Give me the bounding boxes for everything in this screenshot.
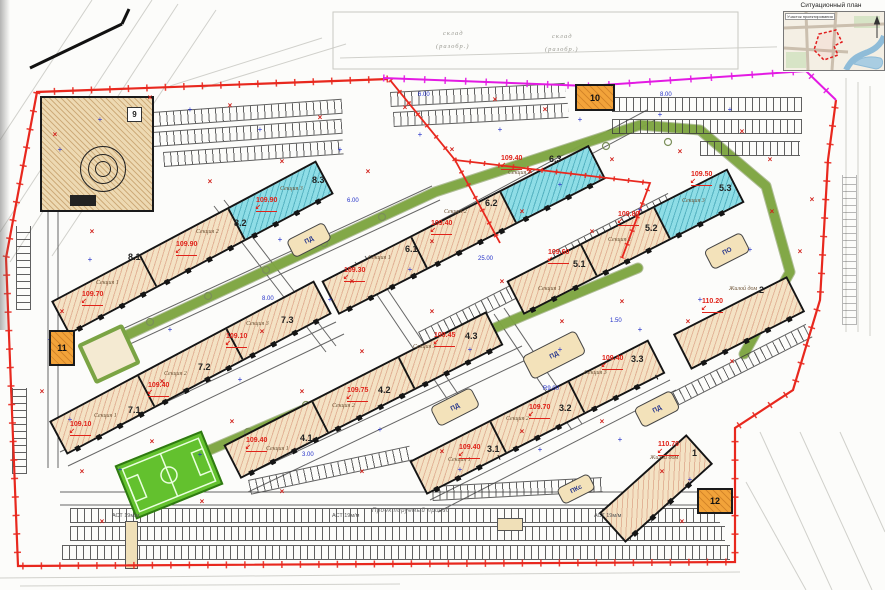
tree-removal-mark: × <box>450 146 455 154</box>
elevation-mark: 109.10 <box>70 421 91 436</box>
elevation-mark: 109.60 <box>548 249 569 264</box>
tree-removal-mark: × <box>53 131 58 139</box>
tree-removal-mark: × <box>150 438 155 446</box>
existing-structure-label: (разобр.) <box>545 46 579 53</box>
elevation-mark: 110.20 <box>702 298 723 313</box>
elevation-mark: 109.90 <box>176 241 197 256</box>
survey-mark: + <box>498 126 503 134</box>
building-number: 3.2 <box>559 404 572 413</box>
service-object-11: 11 <box>49 330 75 366</box>
dimension-label: 8.00 <box>660 92 672 98</box>
building-section <box>413 192 517 267</box>
building-number: 2 <box>759 286 764 295</box>
section-label: Секция 1 <box>368 255 391 261</box>
dimension-label: 1.50 <box>610 318 622 324</box>
parking-row-vertical <box>842 175 857 325</box>
tree-removal-mark: × <box>620 298 625 306</box>
tree-removal-mark: × <box>100 518 105 526</box>
parking-row <box>62 545 730 560</box>
parking-count-label: АСТ 19м/м <box>594 514 621 520</box>
elevation-mark: 109.40 <box>501 155 522 170</box>
tree-removal-mark: × <box>500 278 505 286</box>
tree-removal-mark: × <box>360 348 365 356</box>
dimension-label: 8.00 <box>262 296 274 302</box>
parking-count-label: АСТ 19м/м <box>112 514 139 520</box>
tree-removal-mark: × <box>200 498 205 506</box>
building-number: 4.2 <box>378 386 391 395</box>
site-pad-ПД: ПД <box>430 387 481 427</box>
parking-count-label: АСТ 19м/м <box>332 514 359 520</box>
tree-removal-mark: × <box>90 228 95 236</box>
tree-removal-mark: × <box>600 418 605 426</box>
tree-removal-mark: × <box>160 378 165 386</box>
existing-structure-label: (разобр.) <box>436 43 470 50</box>
survey-mark: + <box>118 466 123 474</box>
elevation-mark: 109.80 <box>618 211 639 226</box>
tree-removal-mark: × <box>686 318 691 326</box>
tree-removal-mark: × <box>360 468 365 476</box>
tree-removal-mark: × <box>810 196 815 204</box>
elevation-mark: 109.70 <box>529 404 550 419</box>
tree-removal-mark: × <box>440 448 445 456</box>
survey-mark: + <box>88 256 93 264</box>
survey-mark: + <box>188 106 193 114</box>
survey-mark: + <box>688 476 693 484</box>
survey-mark: + <box>378 426 383 434</box>
tree-removal-mark: × <box>60 308 65 316</box>
survey-mark: + <box>468 346 473 354</box>
section-label: Секция 1 <box>538 286 561 292</box>
survey-mark: + <box>698 296 703 304</box>
utility-pad <box>497 518 523 531</box>
section-label: Секция 1 <box>94 413 117 419</box>
dimension-label: R9.00 <box>543 386 559 392</box>
survey-mark: + <box>618 436 623 444</box>
parking-row <box>612 119 802 134</box>
building-number: 6.3 <box>549 155 562 164</box>
tree-removal-mark: × <box>208 178 213 186</box>
tree-removal-mark: × <box>280 488 285 496</box>
utility-pad <box>125 521 138 569</box>
existing-structure-label: склад <box>552 33 573 40</box>
tree-removal-mark: × <box>230 418 235 426</box>
parking-row-vertical <box>16 226 31 310</box>
building-number: 5.3 <box>719 184 732 193</box>
tree-removal-mark: × <box>403 104 408 112</box>
section-label: Секция 3 <box>584 370 607 376</box>
north-arrow <box>875 17 880 38</box>
survey-mark: + <box>408 266 413 274</box>
road-name-label: Проектируемый проезд <box>372 508 450 514</box>
building-number: 5.2 <box>645 224 658 233</box>
elevation-mark: 109.30 <box>344 267 365 282</box>
dimension-label: 6.00 <box>347 198 359 204</box>
tree-removal-mark: × <box>528 168 533 176</box>
tree-removal-mark: × <box>430 238 435 246</box>
building-number: 3.3 <box>631 355 644 364</box>
site-pad-ПД: ПД <box>521 330 586 380</box>
situational-plan-title: Ситуационный план <box>777 0 885 9</box>
tree-removal-mark: × <box>590 228 595 236</box>
survey-mark: + <box>58 146 63 154</box>
section-label: Секция 3 <box>280 186 303 192</box>
tree-removal-mark: × <box>660 468 665 476</box>
section-label: Жилой дом <box>727 286 759 293</box>
tree-removal-mark: × <box>280 158 285 166</box>
survey-mark: + <box>418 131 423 139</box>
section-label: Секция 2 <box>196 229 219 235</box>
section-label: Секция 3 <box>682 198 705 204</box>
section-label: Секция 1 <box>96 280 119 286</box>
parking-row <box>612 97 802 112</box>
building-number: 4.1 <box>300 434 313 443</box>
section-label: Секция 2 <box>506 416 529 422</box>
survey-mark: + <box>658 111 663 119</box>
building-number: 3.1 <box>487 445 500 454</box>
tree-removal-mark: × <box>300 388 305 396</box>
tree-removal-mark: × <box>610 156 615 164</box>
building-number: 7.1 <box>128 406 141 415</box>
section-label: Секция 2 <box>608 237 631 243</box>
survey-mark: + <box>168 326 173 334</box>
tree-removal-mark: × <box>798 248 803 256</box>
tree-removal-mark: × <box>366 168 371 176</box>
survey-mark: + <box>458 466 463 474</box>
survey-mark: + <box>748 246 753 254</box>
survey-mark: + <box>328 296 333 304</box>
tree-removal-mark: × <box>318 114 323 122</box>
survey-mark: + <box>338 146 343 154</box>
situational-plan-inset: Ситуационный план Участок проектирования <box>777 0 885 72</box>
building-number: 4.3 <box>465 332 478 341</box>
design-area-label: Участок проектирования <box>785 13 835 20</box>
tree-removal-mark: × <box>560 318 565 326</box>
survey-mark: + <box>728 106 733 114</box>
block-annex <box>70 195 96 206</box>
existing-structure-label: склад <box>443 30 464 37</box>
site-pad-ПД: ПД <box>286 222 333 259</box>
tree-removal-mark: × <box>768 156 773 164</box>
dimension-label: 6.00 <box>418 92 430 98</box>
elevation-mark: 109.50 <box>691 171 712 186</box>
tree-removal-mark: × <box>228 102 233 110</box>
elevation-mark: 109.10 <box>226 333 247 348</box>
elevation-mark: 109.45 <box>434 332 455 347</box>
ramp-circle-inner <box>95 161 111 177</box>
survey-mark: + <box>558 181 563 189</box>
site-pad-ПО: ПО <box>703 232 750 271</box>
elevation-mark: 110.70 <box>658 441 679 456</box>
building-number: 8.3 <box>312 176 325 185</box>
elevation-mark: 109.70 <box>82 291 103 306</box>
section-label: Секция 3 <box>246 321 269 327</box>
section-label: Секция 1 <box>266 446 289 452</box>
site-plan-canvas: 9 ПДПДПДПДПОПКс 8.1Секция 1109.708.2Секц… <box>0 0 885 590</box>
elevation-mark: 109.90 <box>256 197 277 212</box>
elevation-mark: 109.40 <box>459 444 480 459</box>
tree-removal-mark: × <box>260 328 265 336</box>
survey-mark: + <box>258 126 263 134</box>
building-number: 6.1 <box>405 245 418 254</box>
site-pad-ПД: ПД <box>633 390 680 429</box>
building-number: 8.1 <box>128 253 141 262</box>
building-number-9: 9 <box>127 107 142 122</box>
tree-removal-mark: × <box>493 96 498 104</box>
elevation-mark: 109.40 <box>246 437 267 452</box>
elevation-mark: 109.40 <box>602 355 623 370</box>
tree-removal-mark: × <box>148 94 153 102</box>
sports-field <box>115 431 224 520</box>
section-label: Жилой дом <box>648 455 680 462</box>
elevation-mark: 109.75 <box>347 387 368 402</box>
dimension-label: 3.00 <box>302 452 314 458</box>
parking-row-vertical <box>12 388 27 474</box>
survey-mark: + <box>98 116 103 124</box>
section-label: Секция 2 <box>332 403 355 409</box>
tree-removal-mark: × <box>680 518 685 526</box>
tree-removal-mark: × <box>770 208 775 216</box>
design-area-boundary <box>814 30 842 60</box>
building-number: 7.3 <box>281 316 294 325</box>
survey-mark: + <box>638 206 643 214</box>
building-number: 6.2 <box>485 199 498 208</box>
dimension-label: 25.00 <box>478 256 493 262</box>
situational-plan-map: Участок проектирования <box>783 11 885 71</box>
tree-removal-mark: × <box>678 148 683 156</box>
survey-mark: + <box>578 116 583 124</box>
survey-mark: + <box>538 446 543 454</box>
survey-mark: + <box>198 451 203 459</box>
scan-edge-shadow <box>0 0 10 330</box>
site-pad-ПКс: ПКс <box>556 473 596 505</box>
section-label: Секция 2 <box>444 209 467 215</box>
tree-removal-mark: × <box>430 308 435 316</box>
tree-removal-mark: × <box>740 128 745 136</box>
survey-mark: + <box>638 326 643 334</box>
tree-removal-mark: × <box>543 106 548 114</box>
survey-mark: + <box>68 416 73 424</box>
survey-mark: + <box>238 376 243 384</box>
tree-removal-mark: × <box>350 278 355 286</box>
tree-removal-mark: × <box>40 388 45 396</box>
building-number: 8.2 <box>234 219 247 228</box>
playground-area <box>77 323 141 384</box>
section-label: Секция 2 <box>164 371 187 377</box>
building-number: 5.1 <box>573 260 586 269</box>
service-object-12: 12 <box>697 488 733 514</box>
tree-removal-mark: × <box>520 208 525 216</box>
tree-removal-mark: × <box>730 358 735 366</box>
tree-removal-mark: × <box>520 428 525 436</box>
survey-mark: + <box>278 236 283 244</box>
service-object-10: 10 <box>575 84 615 111</box>
building-number: 7.2 <box>198 363 211 372</box>
elevation-mark: 109.40 <box>431 220 452 235</box>
tree-removal-mark: × <box>80 468 85 476</box>
building-section <box>54 255 158 332</box>
parking-row <box>700 141 800 156</box>
building-number: 1 <box>692 449 697 458</box>
survey-mark: + <box>558 346 563 354</box>
